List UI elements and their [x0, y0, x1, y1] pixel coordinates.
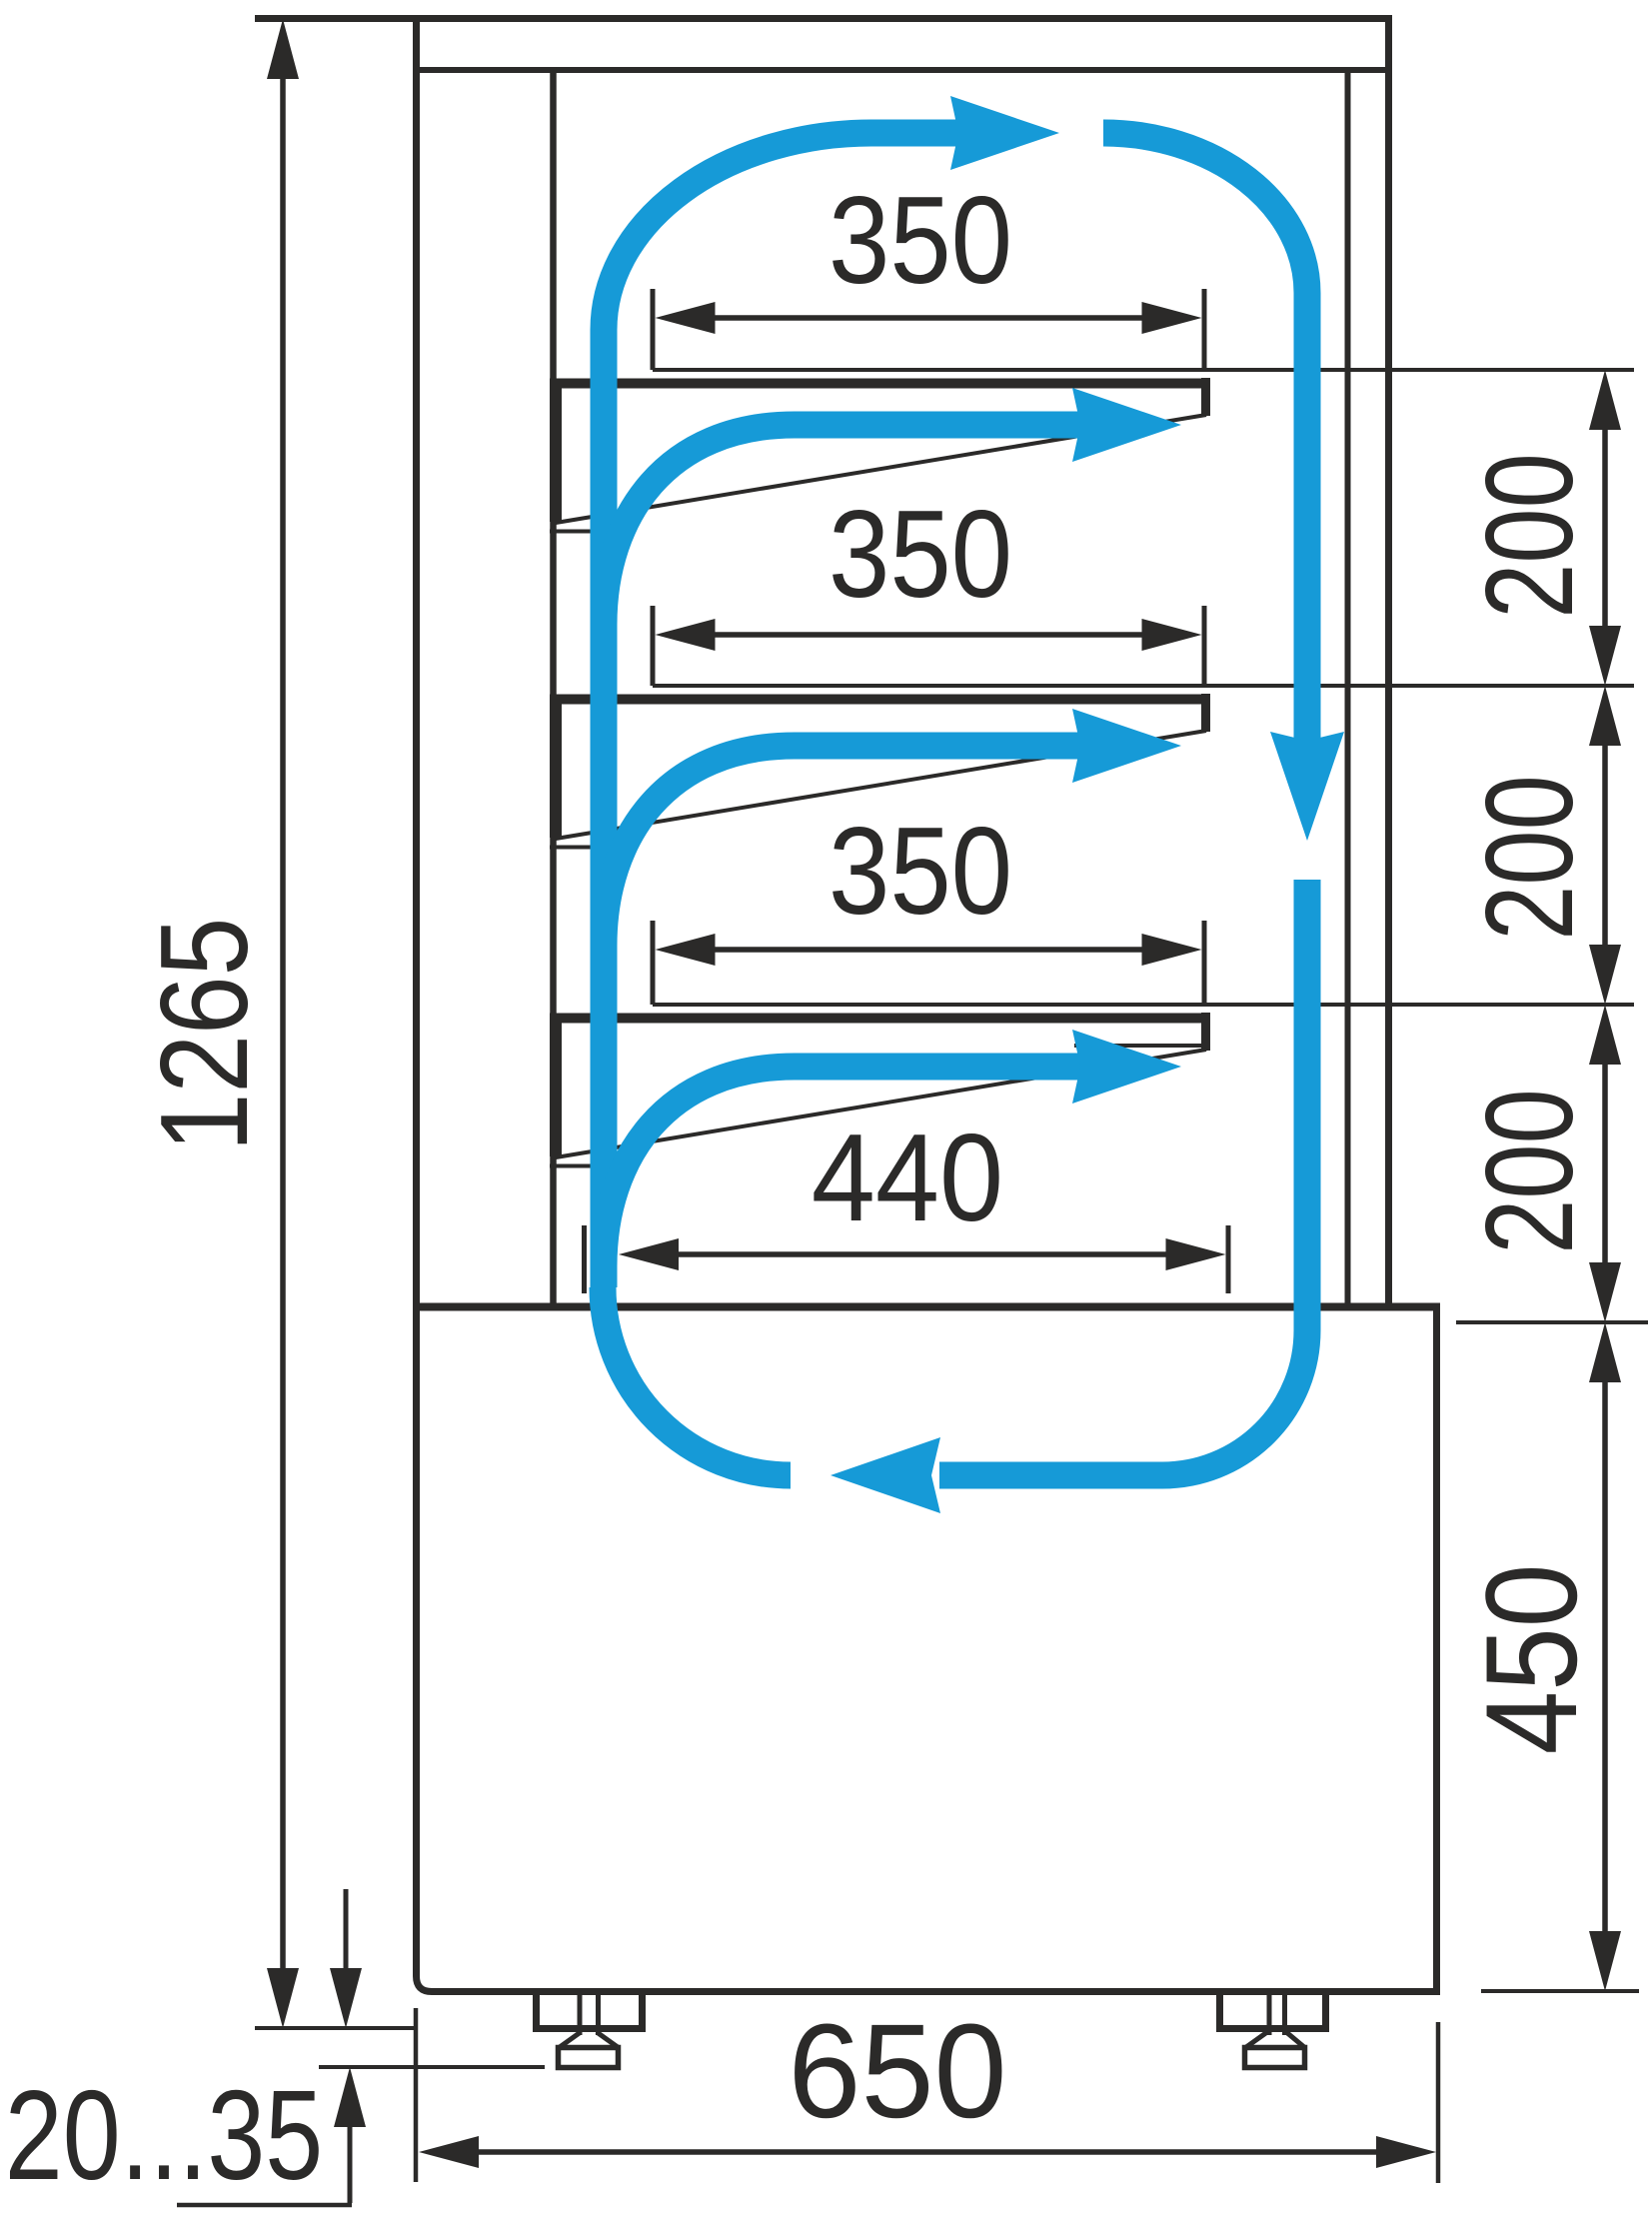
svg-text:350: 350	[828, 485, 1012, 623]
svg-text:350: 350	[828, 802, 1012, 940]
svg-text:20...35: 20...35	[5, 2064, 323, 2206]
svg-text:450: 450	[1458, 1564, 1603, 1755]
svg-text:200: 200	[1459, 453, 1598, 618]
svg-text:650: 650	[788, 1997, 1006, 2146]
svg-text:200: 200	[1459, 775, 1598, 940]
svg-text:440: 440	[812, 1109, 1003, 1247]
svg-text:350: 350	[828, 171, 1012, 309]
svg-text:1265: 1265	[136, 918, 274, 1151]
svg-text:200: 200	[1459, 1089, 1598, 1253]
